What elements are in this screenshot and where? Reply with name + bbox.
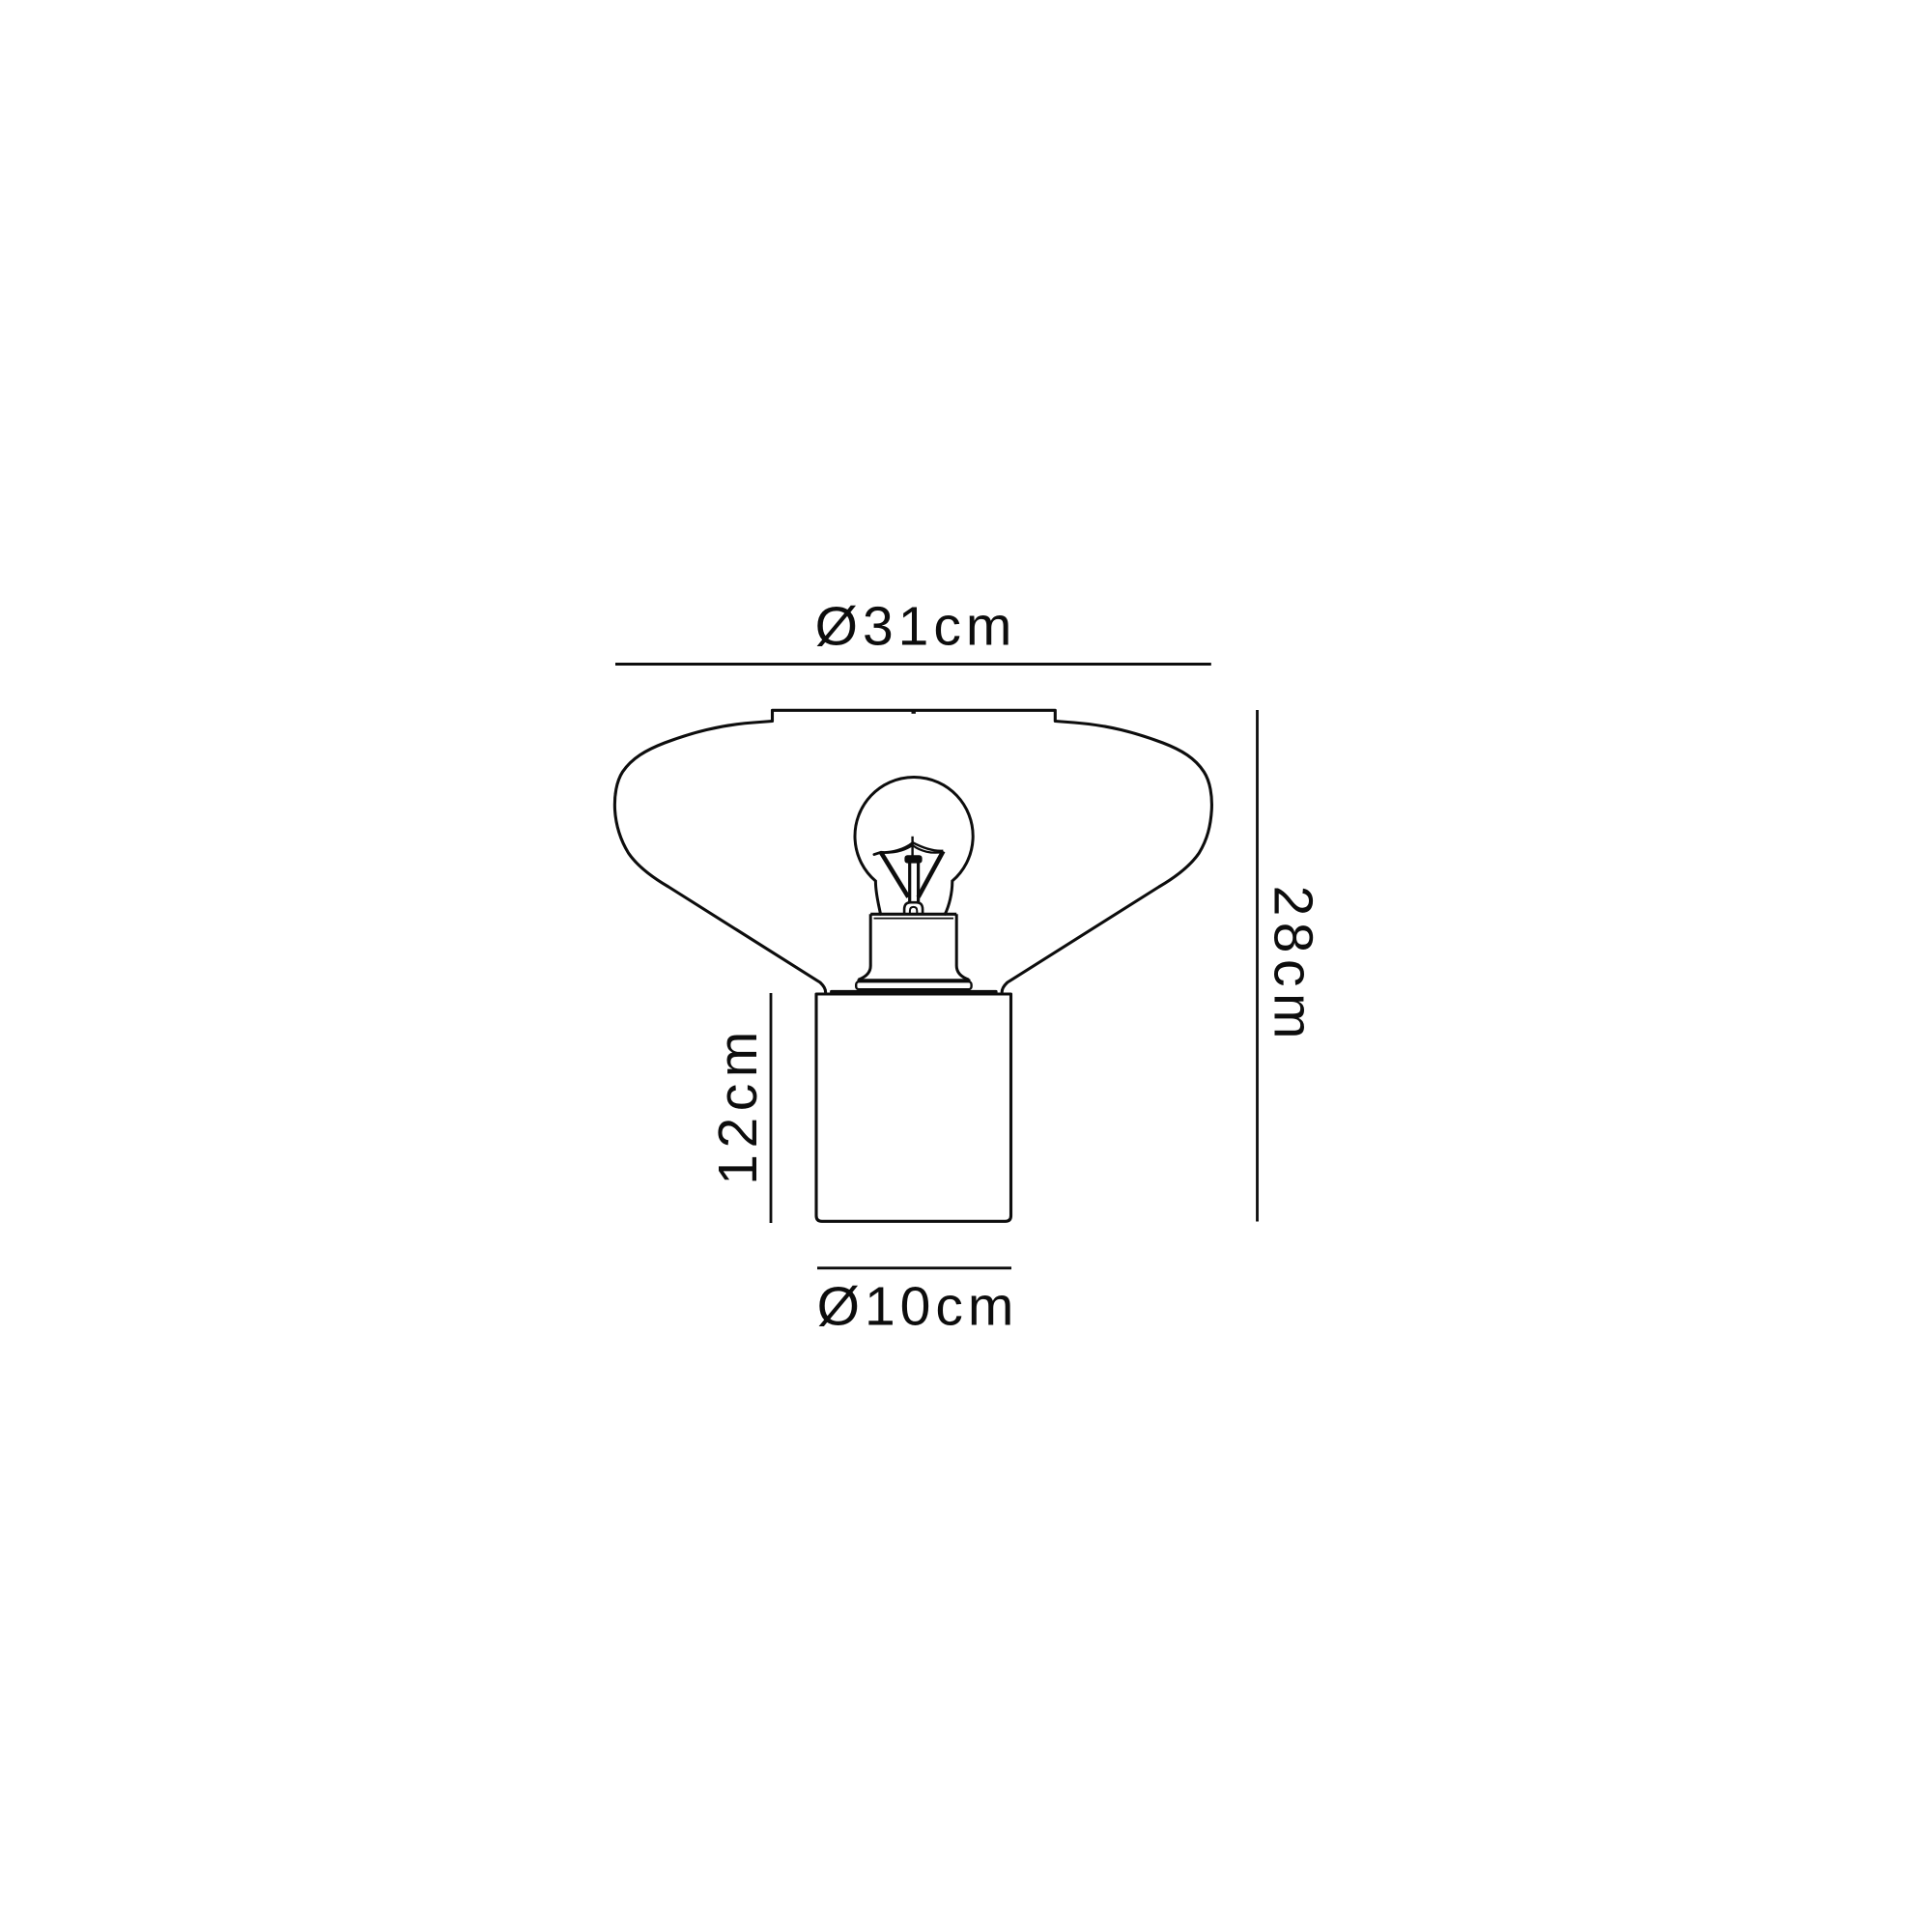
svg-text:12cm: 12cm: [707, 1025, 769, 1184]
svg-text:Ø10cm: Ø10cm: [817, 1276, 1019, 1338]
svg-text:Ø31cm: Ø31cm: [815, 596, 1017, 658]
svg-text:28cm: 28cm: [1263, 886, 1324, 1045]
